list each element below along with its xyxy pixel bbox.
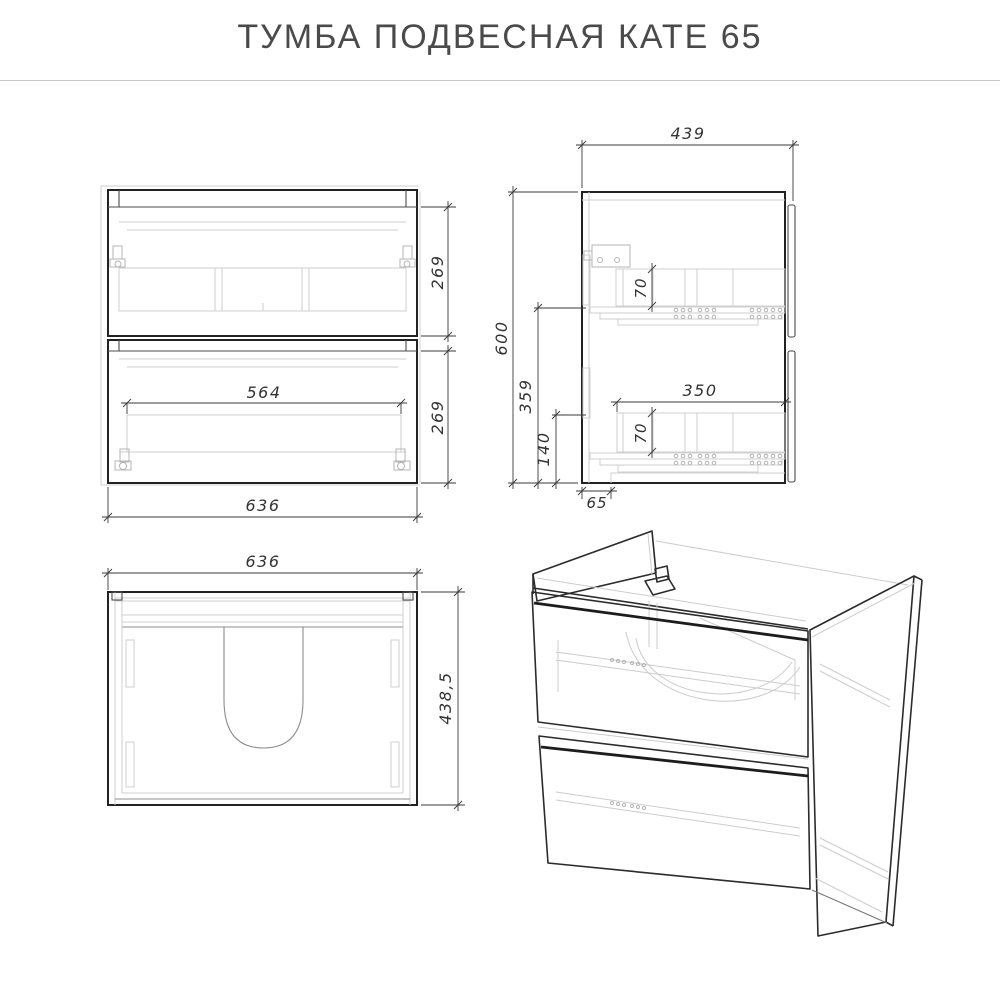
front-lower-drawer bbox=[108, 340, 417, 483]
wall-mount-bracket bbox=[584, 245, 630, 267]
front-upper-drawer bbox=[108, 190, 417, 336]
dim-front-lower-drawer-height: 269 bbox=[428, 399, 447, 434]
drawing-canvas: 564 636 269 26 bbox=[0, 0, 1000, 1000]
dim-side-drawer-depth: 350 bbox=[682, 381, 717, 400]
iso-right-panel bbox=[810, 576, 922, 936]
iso-view bbox=[532, 531, 922, 936]
dim-side-back-offset: 65 bbox=[586, 494, 607, 512]
side-drawer-fronts bbox=[788, 205, 795, 482]
top-dimensions: 636 438,5 bbox=[102, 552, 465, 811]
iso-upper-drawer-box bbox=[556, 640, 890, 707]
iso-lower-drawer-box bbox=[556, 792, 888, 879]
side-outline bbox=[582, 192, 785, 483]
dim-side-height: 600 bbox=[492, 320, 511, 355]
dim-side-lower-slide-offset: 140 bbox=[534, 431, 553, 466]
side-view: 70 bbox=[492, 124, 799, 512]
dim-top-depth: 438,5 bbox=[436, 671, 455, 724]
front-view: 564 636 269 26 bbox=[101, 186, 456, 523]
dim-front-upper-drawer-height: 269 bbox=[428, 254, 447, 289]
dim-side-lower-box-height: 70 bbox=[632, 422, 650, 443]
iso-bottom-edges bbox=[812, 878, 887, 923]
side-lower-drawer-box: 70 bbox=[590, 407, 785, 472]
sink-cutout bbox=[224, 627, 303, 748]
top-slide-rails bbox=[126, 640, 399, 787]
drawer-slide-hardware bbox=[110, 246, 415, 267]
top-view: 636 438,5 bbox=[102, 552, 465, 811]
dim-side-depth: 439 bbox=[670, 124, 705, 143]
dim-side-upper-box-height: 70 bbox=[632, 277, 650, 298]
dim-top-width: 636 bbox=[245, 552, 280, 571]
side-upper-drawer-box: 70 bbox=[590, 263, 785, 325]
iso-lower-drawer-front bbox=[539, 736, 810, 889]
dim-front-width: 636 bbox=[245, 496, 280, 515]
dim-front-inner-width: 564 bbox=[246, 383, 281, 402]
top-outline bbox=[108, 592, 417, 805]
iso-drawer-gap bbox=[538, 727, 808, 759]
iso-upper-drawer-front bbox=[532, 592, 808, 757]
dim-side-upper-slide-offset: 359 bbox=[516, 378, 535, 413]
drawing-page: ТУМБА ПОДВЕСНАЯ КАТЕ 65 bbox=[0, 0, 1000, 1000]
